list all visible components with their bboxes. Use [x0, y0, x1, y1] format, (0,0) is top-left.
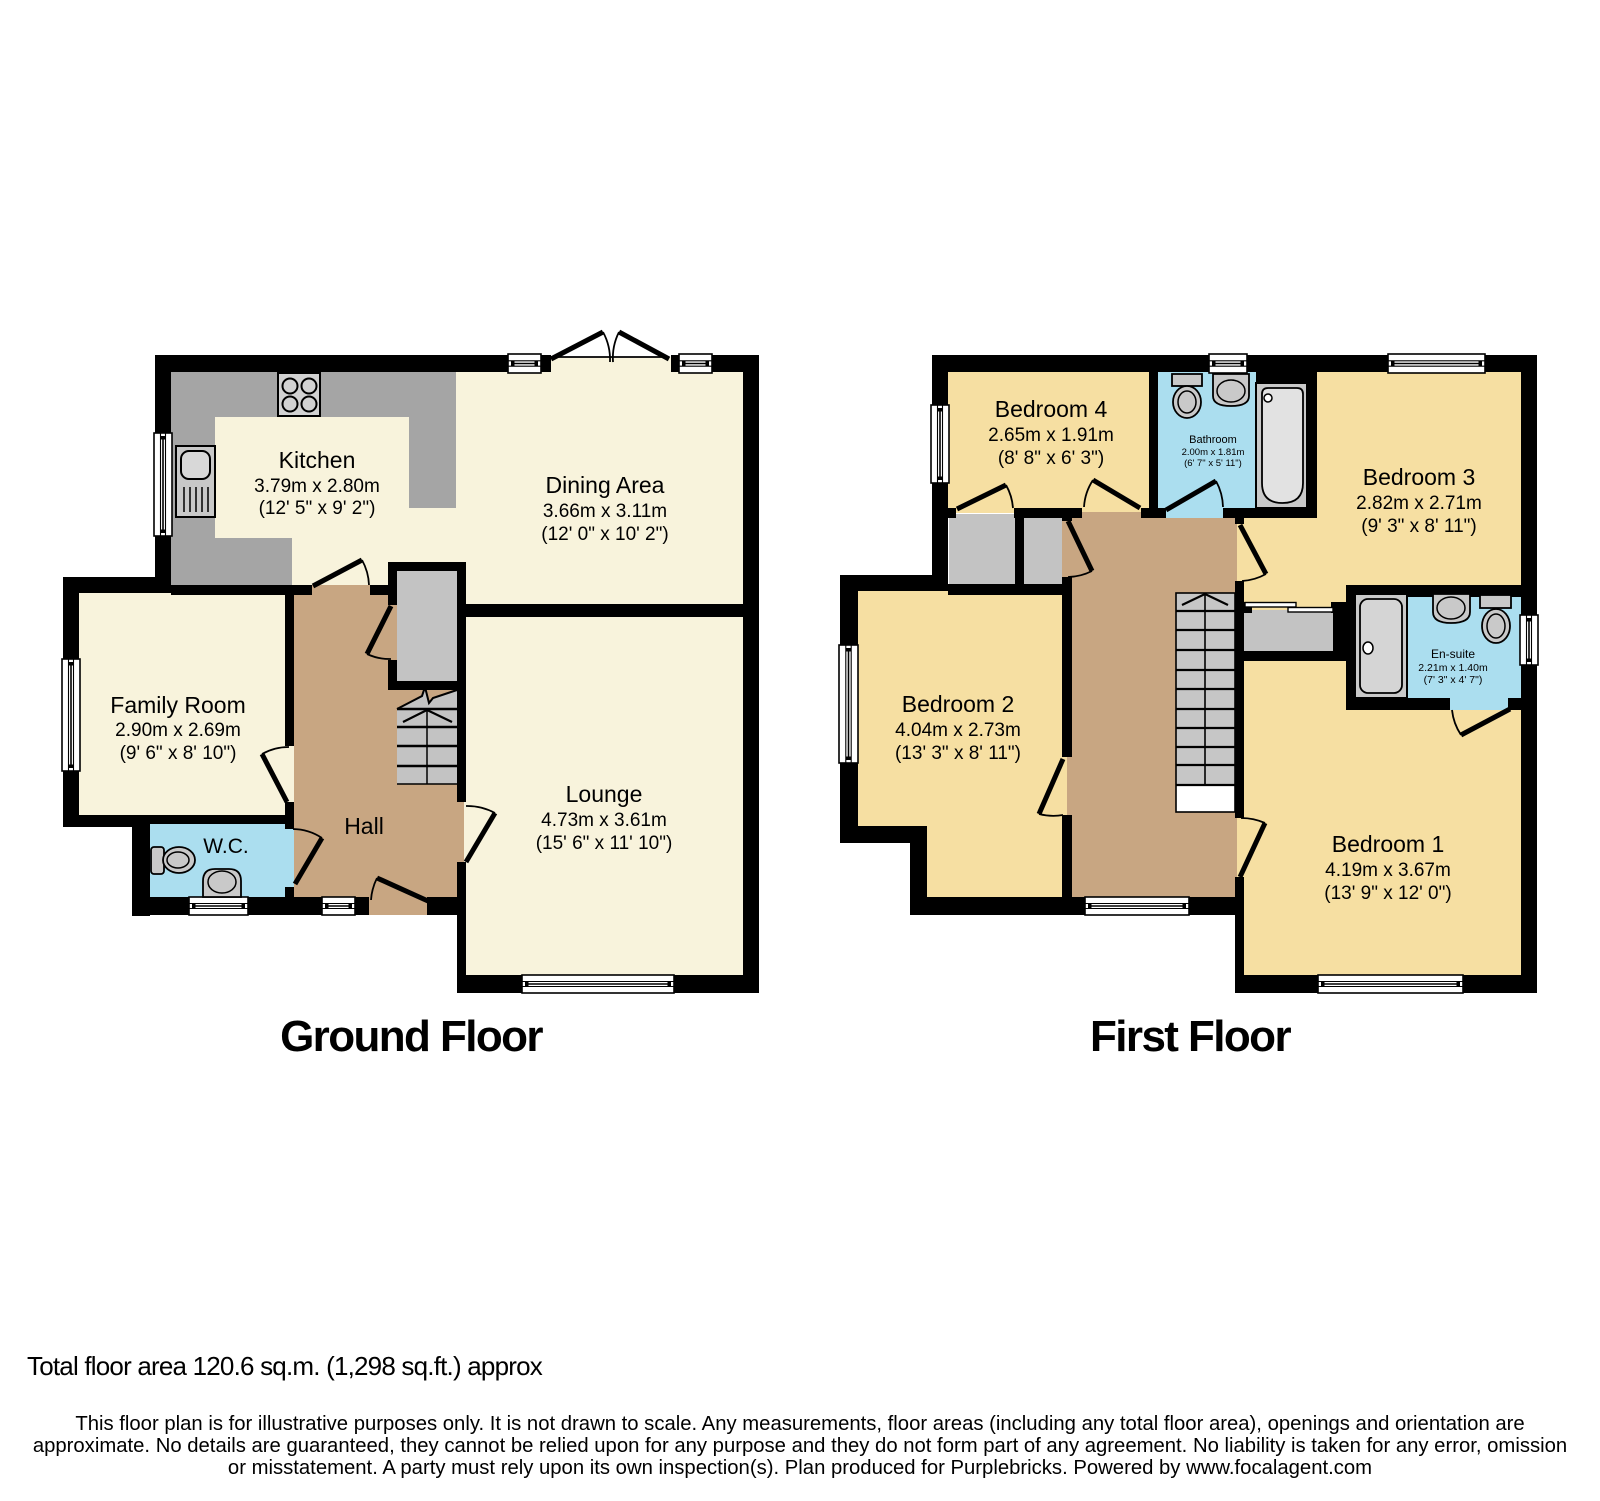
svg-text:Family Room: Family Room: [110, 692, 245, 718]
svg-text:Dining Area: Dining Area: [546, 472, 665, 498]
svg-text:(13' 3" x 8' 11"): (13' 3" x 8' 11"): [895, 743, 1021, 764]
svg-text:4.73m x 3.61m: 4.73m x 3.61m: [541, 810, 667, 831]
svg-text:Lounge: Lounge: [566, 781, 643, 807]
svg-text:Ground Floor: Ground Floor: [280, 1012, 543, 1061]
svg-text:(13' 9" x 12' 0"): (13' 9" x 12' 0"): [1324, 883, 1451, 904]
svg-text:(7' 3" x 4' 7"): (7' 3" x 4' 7"): [1424, 674, 1483, 686]
svg-text:3.66m x 3.11m: 3.66m x 3.11m: [543, 501, 667, 522]
svg-text:2.21m x 1.40m: 2.21m x 1.40m: [1418, 662, 1488, 674]
svg-text:(9' 6" x 8' 10"): (9' 6" x 8' 10"): [120, 743, 237, 764]
svg-text:(12' 0" x 10' 2"): (12' 0" x 10' 2"): [541, 524, 668, 545]
svg-text:2.65m x 1.91m: 2.65m x 1.91m: [988, 425, 1114, 446]
svg-text:Kitchen: Kitchen: [279, 447, 356, 473]
svg-text:(15' 6" x 11' 10"): (15' 6" x 11' 10"): [536, 833, 673, 854]
svg-text:3.79m x 2.80m: 3.79m x 2.80m: [254, 476, 380, 497]
svg-text:approximate. No details are gu: approximate. No details are guaranteed, …: [33, 1435, 1567, 1457]
svg-text:Hall: Hall: [344, 813, 384, 839]
svg-text:Bedroom 2: Bedroom 2: [902, 691, 1015, 717]
svg-text:4.04m x 2.73m: 4.04m x 2.73m: [895, 720, 1021, 741]
svg-text:2.90m x 2.69m: 2.90m x 2.69m: [115, 720, 241, 741]
svg-text:Bedroom 3: Bedroom 3: [1363, 464, 1476, 490]
svg-text:Bedroom 4: Bedroom 4: [995, 396, 1108, 422]
svg-text:En-suite: En-suite: [1431, 647, 1475, 661]
svg-text:Bedroom 1: Bedroom 1: [1332, 831, 1445, 857]
svg-text:(9' 3" x 8' 11"): (9' 3" x 8' 11"): [1361, 516, 1476, 537]
svg-text:Bathroom: Bathroom: [1189, 434, 1237, 446]
svg-text:First Floor: First Floor: [1090, 1012, 1291, 1061]
svg-text:(12' 5" x 9' 2"): (12' 5" x 9' 2"): [259, 498, 376, 519]
svg-text:2.00m x 1.81m: 2.00m x 1.81m: [1182, 447, 1245, 458]
svg-text:(8' 8" x 6' 3"): (8' 8" x 6' 3"): [998, 448, 1104, 469]
svg-text:This floor plan is for illustr: This floor plan is for illustrative purp…: [75, 1413, 1524, 1435]
svg-text:4.19m x 3.67m: 4.19m x 3.67m: [1325, 860, 1451, 881]
svg-text:Total floor area 120.6 sq.m. (: Total floor area 120.6 sq.m. (1,298 sq.f…: [27, 1351, 543, 1381]
svg-text:or misstatement. A party must: or misstatement. A party must rely upon …: [228, 1457, 1372, 1479]
svg-text:W.C.: W.C.: [203, 835, 249, 858]
svg-text:2.82m x 2.71m: 2.82m x 2.71m: [1356, 493, 1482, 514]
svg-text:(6' 7" x 5' 11"): (6' 7" x 5' 11"): [1184, 458, 1242, 469]
